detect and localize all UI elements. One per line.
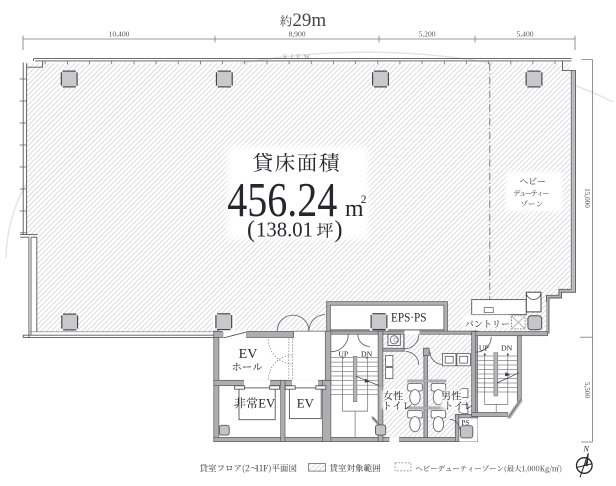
svg-text:2: 2 (361, 194, 367, 206)
svg-text:138.01: 138.01 (256, 218, 313, 242)
svg-text:DN: DN (501, 343, 513, 352)
svg-text:VIEW: VIEW (283, 53, 313, 60)
svg-text:EV: EV (258, 397, 276, 411)
svg-text:10,400: 10,400 (109, 29, 130, 38)
svg-text:5,500: 5,500 (583, 382, 591, 399)
svg-text:EV: EV (239, 347, 258, 362)
svg-text:): ) (335, 217, 343, 243)
svg-text:29m: 29m (292, 10, 326, 31)
svg-text:5,200: 5,200 (418, 29, 435, 38)
svg-text:8,900: 8,900 (288, 29, 305, 38)
svg-text:15,000: 15,000 (583, 188, 591, 208)
svg-text:EV: EV (297, 397, 315, 411)
svg-text:UP: UP (479, 343, 490, 352)
svg-text:5,400: 5,400 (516, 29, 533, 38)
svg-text:(: ( (247, 217, 255, 243)
svg-text:N: N (583, 445, 590, 454)
svg-text:EPS·PS: EPS·PS (391, 310, 427, 325)
